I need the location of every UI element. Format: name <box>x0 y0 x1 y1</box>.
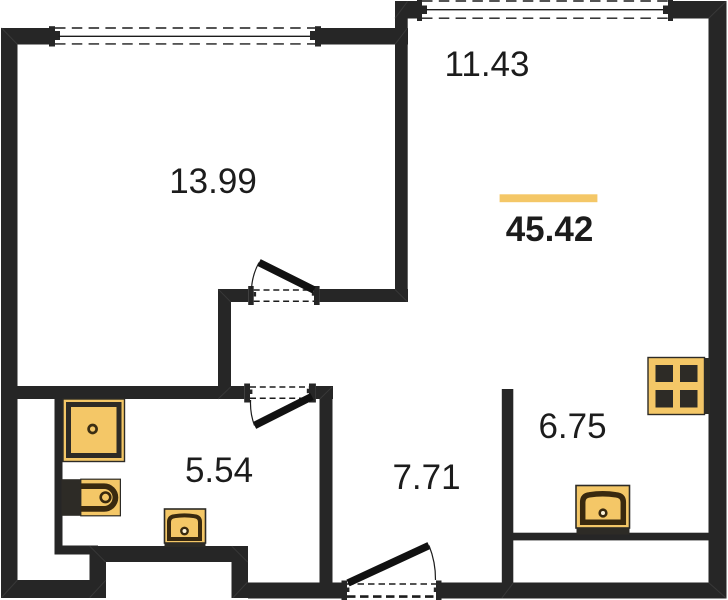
svg-text:7.71: 7.71 <box>392 458 460 497</box>
svg-text:6.75: 6.75 <box>538 407 606 446</box>
svg-text:45.42: 45.42 <box>506 210 594 249</box>
svg-text:5.54: 5.54 <box>185 451 253 490</box>
svg-text:13.99: 13.99 <box>169 162 257 201</box>
svg-text:11.43: 11.43 <box>445 45 530 84</box>
